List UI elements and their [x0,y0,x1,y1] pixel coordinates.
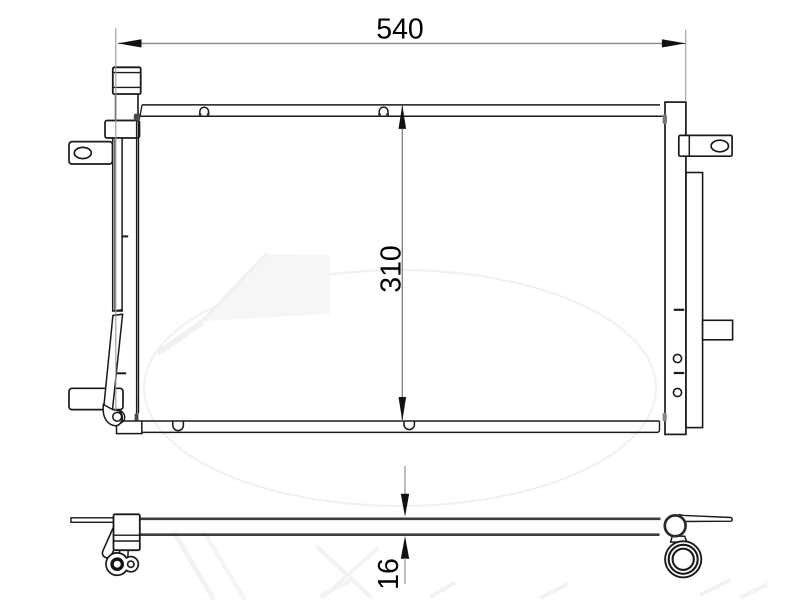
svg-text:540: 540 [376,14,424,46]
svg-text:16: 16 [373,558,405,590]
svg-text:310: 310 [376,245,408,293]
